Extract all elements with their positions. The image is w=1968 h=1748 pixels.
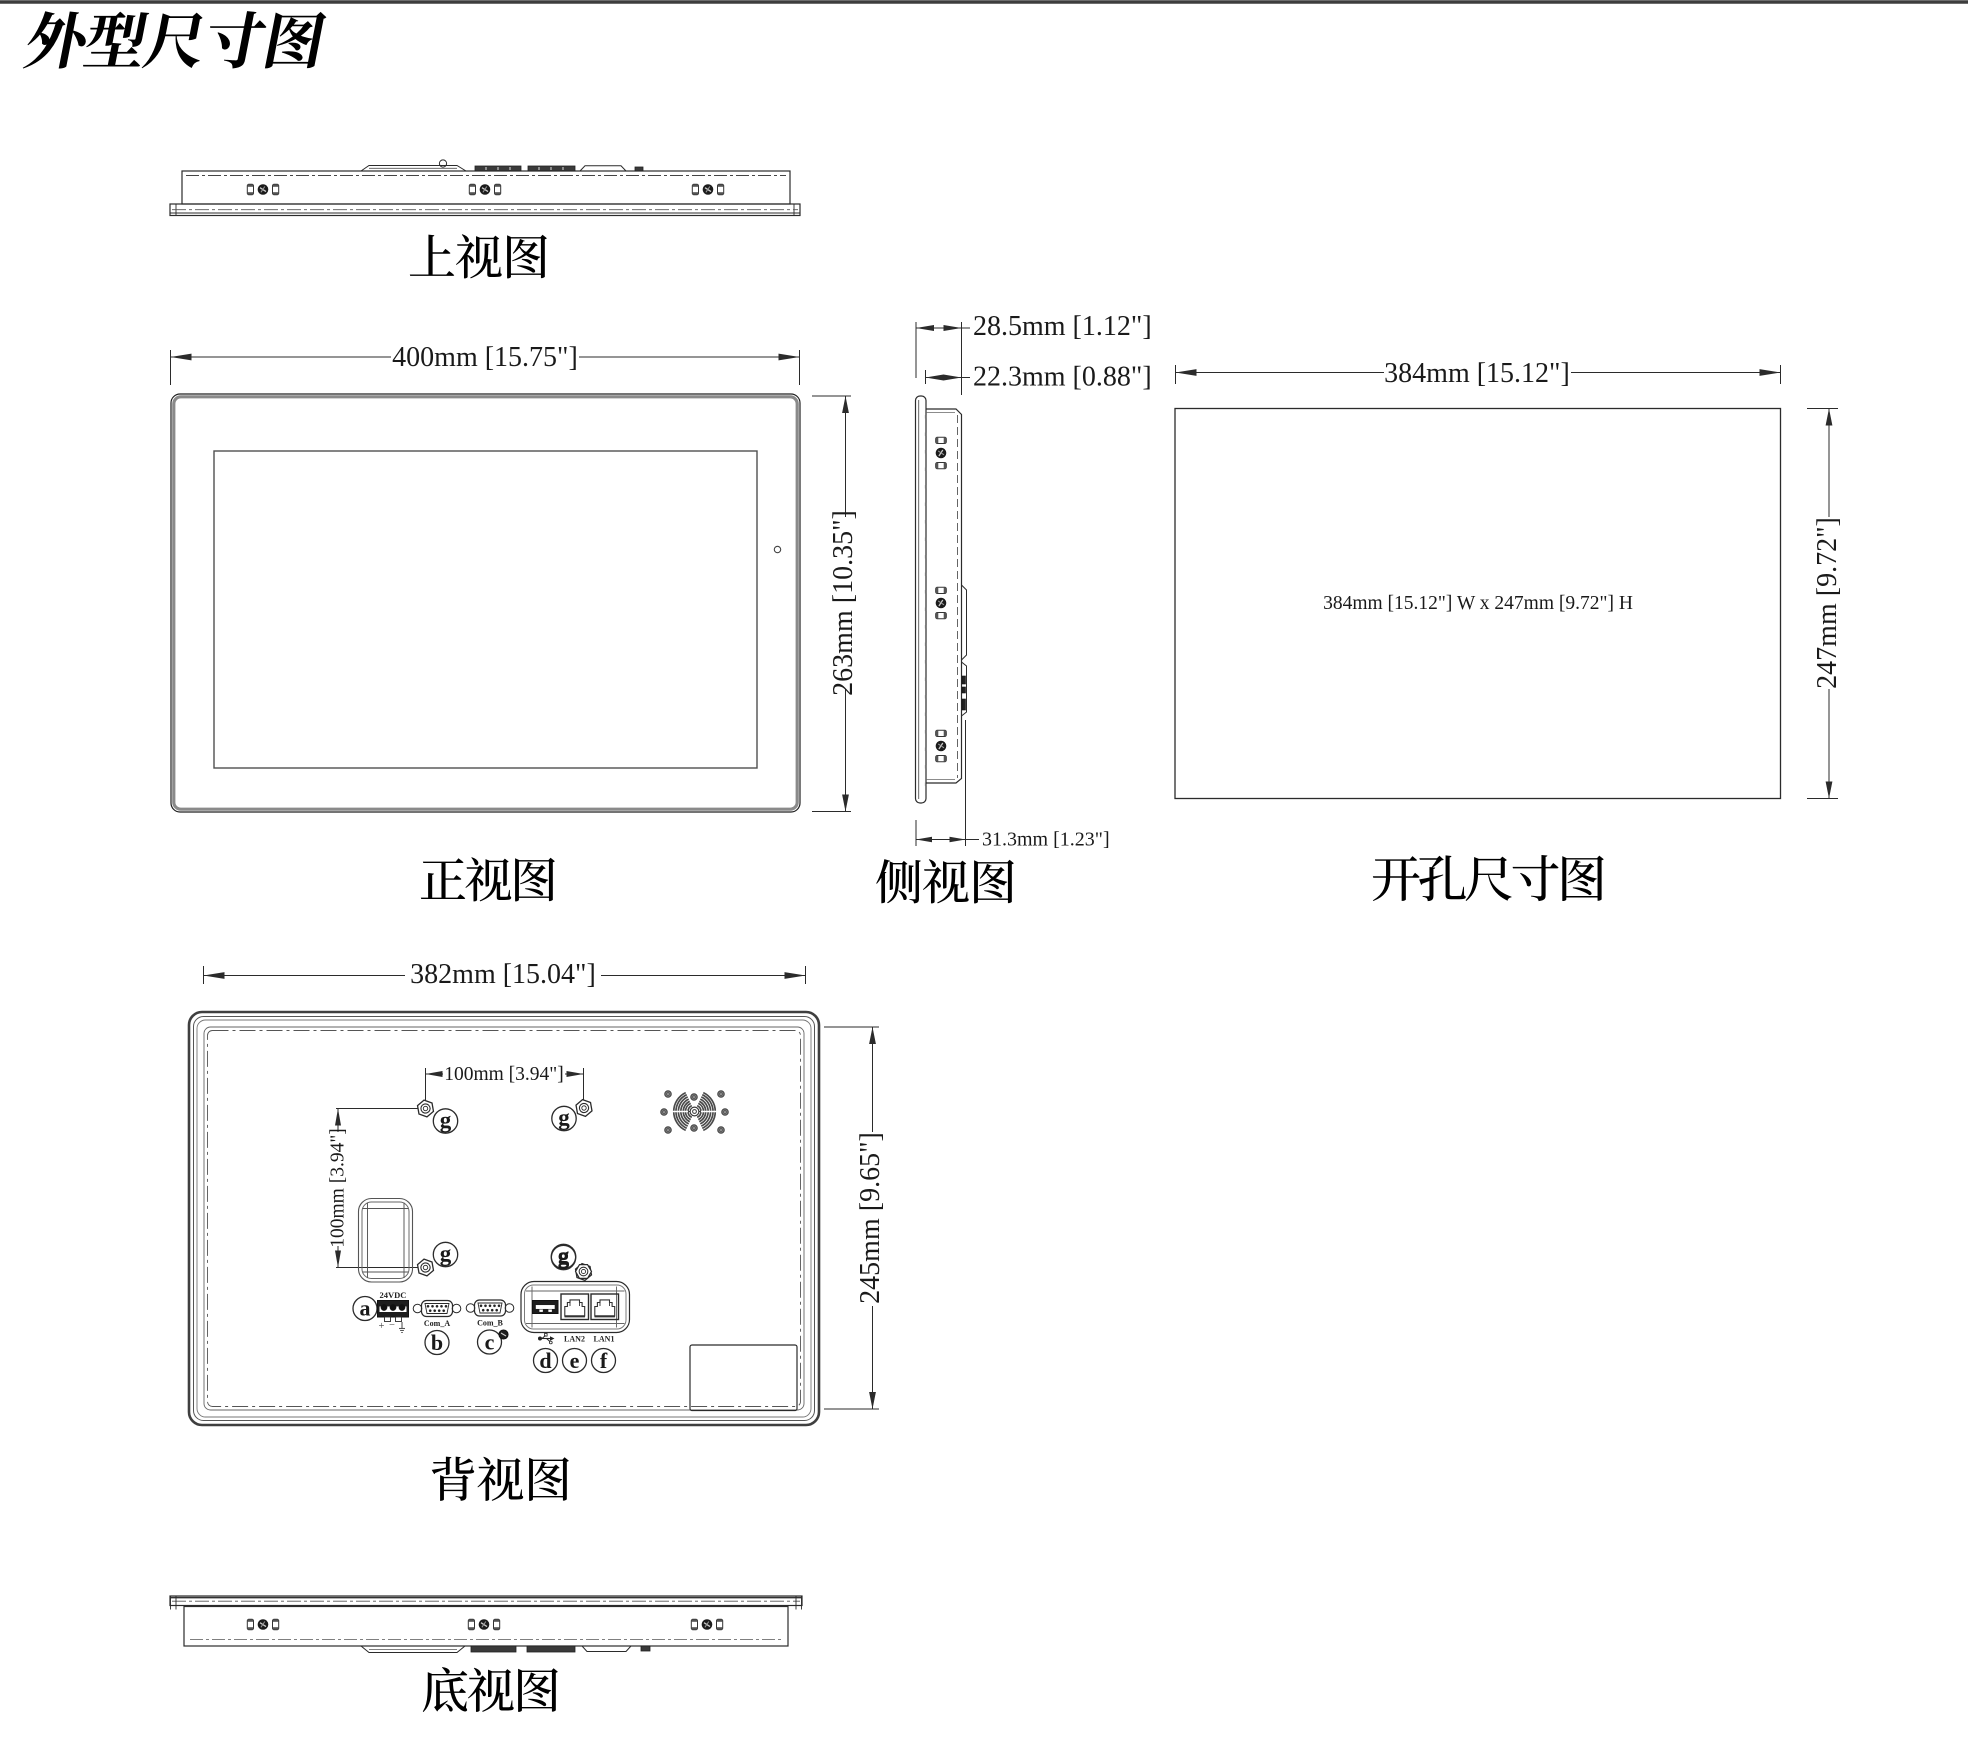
svg-text:400mm [15.75"]: 400mm [15.75"] (392, 342, 578, 373)
svg-text:31.3mm [1.23"]: 31.3mm [1.23"] (982, 829, 1110, 851)
svg-text:28.5mm [1.12"]: 28.5mm [1.12"] (973, 311, 1152, 342)
svg-text:382mm [15.04"]: 382mm [15.04"] (410, 959, 596, 990)
svg-text:g: g (558, 1105, 570, 1130)
svg-text:22.3mm [0.88"]: 22.3mm [0.88"] (973, 362, 1152, 393)
svg-text:Com_A: Com_A (424, 1319, 450, 1328)
svg-text:24VDC: 24VDC (380, 1290, 407, 1300)
svg-text:100mm [3.94"]: 100mm [3.94"] (328, 1128, 349, 1248)
svg-text:384mm [15.12"] W x 247mm [9.72: 384mm [15.12"] W x 247mm [9.72"] H (1323, 593, 1633, 614)
svg-text:e: e (570, 1348, 580, 1373)
svg-text:g: g (440, 1108, 452, 1133)
svg-text:100mm [3.94"]: 100mm [3.94"] (444, 1064, 564, 1085)
svg-text:247mm [9.72"]: 247mm [9.72"] (1812, 517, 1843, 689)
svg-text:d: d (539, 1348, 551, 1373)
svg-text:LAN1: LAN1 (594, 1335, 615, 1344)
svg-text:−: − (389, 1320, 395, 1331)
svg-text:Com_B: Com_B (477, 1319, 503, 1328)
svg-text:f: f (600, 1348, 608, 1373)
svg-text:b: b (431, 1330, 443, 1355)
svg-text:+: + (379, 1321, 385, 1332)
svg-text:c: c (485, 1330, 495, 1355)
svg-text:384mm [15.12"]: 384mm [15.12"] (1384, 358, 1570, 389)
svg-text:g: g (440, 1241, 452, 1266)
svg-text:263mm [10.35"]: 263mm [10.35"] (828, 510, 859, 696)
svg-text:LAN2: LAN2 (564, 1335, 585, 1344)
svg-text:g: g (558, 1244, 570, 1269)
svg-text:a: a (360, 1296, 371, 1321)
svg-text:245mm [9.65"]: 245mm [9.65"] (855, 1132, 886, 1304)
